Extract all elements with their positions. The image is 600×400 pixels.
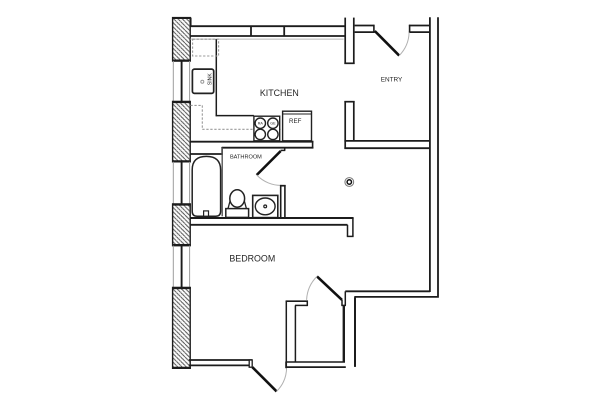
svg-text:BATHROOM: BATHROOM (230, 154, 262, 160)
svg-text:KITCHEN: KITCHEN (260, 88, 299, 98)
svg-text:RA: RA (258, 122, 264, 126)
svg-text:ENTRY: ENTRY (381, 77, 403, 84)
svg-text:GE: GE (270, 122, 276, 126)
svg-text:BEDROOM: BEDROOM (229, 254, 275, 264)
svg-text:REF: REF (289, 118, 302, 125)
svg-text:SINK: SINK (208, 73, 214, 85)
